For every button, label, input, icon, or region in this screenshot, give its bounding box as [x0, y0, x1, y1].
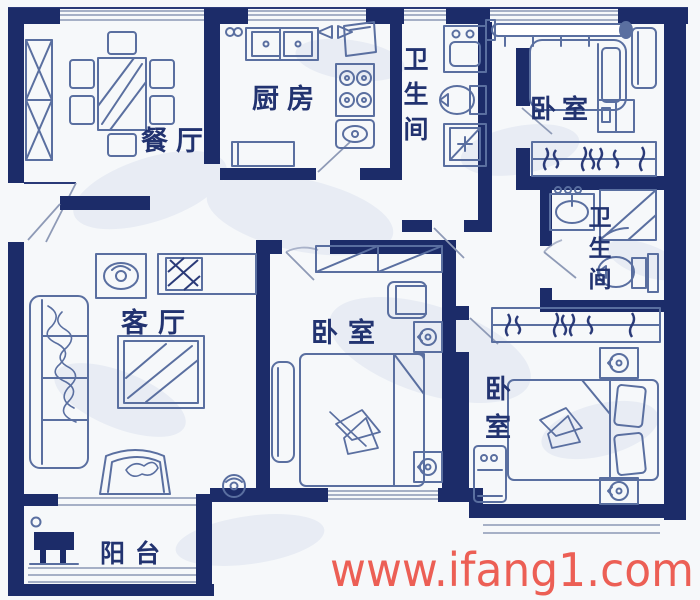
bath-top-shower	[444, 124, 486, 166]
bedroom-top-right-label: 卧室	[530, 94, 594, 125]
kitchen-window	[248, 11, 366, 20]
bath-right-label-2: 生	[589, 236, 612, 262]
bedroom1-nightstand	[598, 100, 634, 132]
balcony-sliding-door	[58, 498, 196, 505]
dining-room: 餐厅	[26, 32, 211, 160]
bedroom-top-right: 卧室	[530, 28, 656, 176]
living-label: 客厅	[121, 307, 195, 339]
dining-table	[98, 58, 146, 130]
bath-top-window	[404, 11, 446, 20]
tv-icon	[168, 258, 200, 290]
bedroom-middle-nightstand-bottom	[414, 452, 442, 482]
bath-top-label-3: 间	[403, 115, 428, 144]
bedroom-middle-window	[328, 491, 438, 499]
floor-plan-svg: 餐厅	[0, 0, 700, 600]
bedroom-middle-cabinet	[272, 362, 294, 462]
balcony-railing	[28, 568, 196, 582]
armchair	[100, 450, 170, 494]
bedroom-bottom-right-label-1: 卧	[485, 375, 511, 405]
bedroom2-wardrobe	[492, 308, 660, 342]
bedroom-top-window	[490, 11, 618, 20]
radiator	[486, 20, 632, 46]
bedroom2-nightstand-top	[600, 348, 638, 378]
bedroom2-nightstand-bottom	[600, 478, 638, 504]
bath-right-label-1: 卫	[589, 205, 612, 231]
bedroom-bottom-right-window	[483, 525, 660, 533]
bath-right-label-3: 间	[589, 267, 612, 293]
washing-machine	[30, 518, 78, 565]
balcony-label: 阳台	[100, 539, 170, 568]
dining-cabinet	[26, 40, 52, 160]
bath-top-label-2: 生	[403, 80, 428, 109]
bedroom-middle-label: 卧室	[311, 317, 385, 349]
balcony: 阳台	[30, 518, 170, 569]
bath-top-label-1: 卫	[403, 45, 428, 74]
dining-window	[60, 11, 204, 20]
bathroom-right: 卫 生 间	[550, 187, 658, 293]
kitchen-bench	[232, 142, 294, 166]
kitchen-label: 厨房	[252, 84, 322, 115]
tv-cabinet	[158, 254, 256, 294]
bedroom1-side-cabinet	[632, 28, 656, 88]
floor-plan-image: 餐厅	[0, 0, 700, 600]
side-table-lamp-top	[96, 254, 146, 298]
dining-label: 餐厅	[141, 126, 211, 157]
bath-right-sink	[550, 187, 594, 230]
watermark-text: www.ifang1.com	[330, 543, 694, 597]
bedroom-bottom-right-label-2: 室	[485, 412, 511, 443]
kitchen-wok	[336, 120, 374, 148]
